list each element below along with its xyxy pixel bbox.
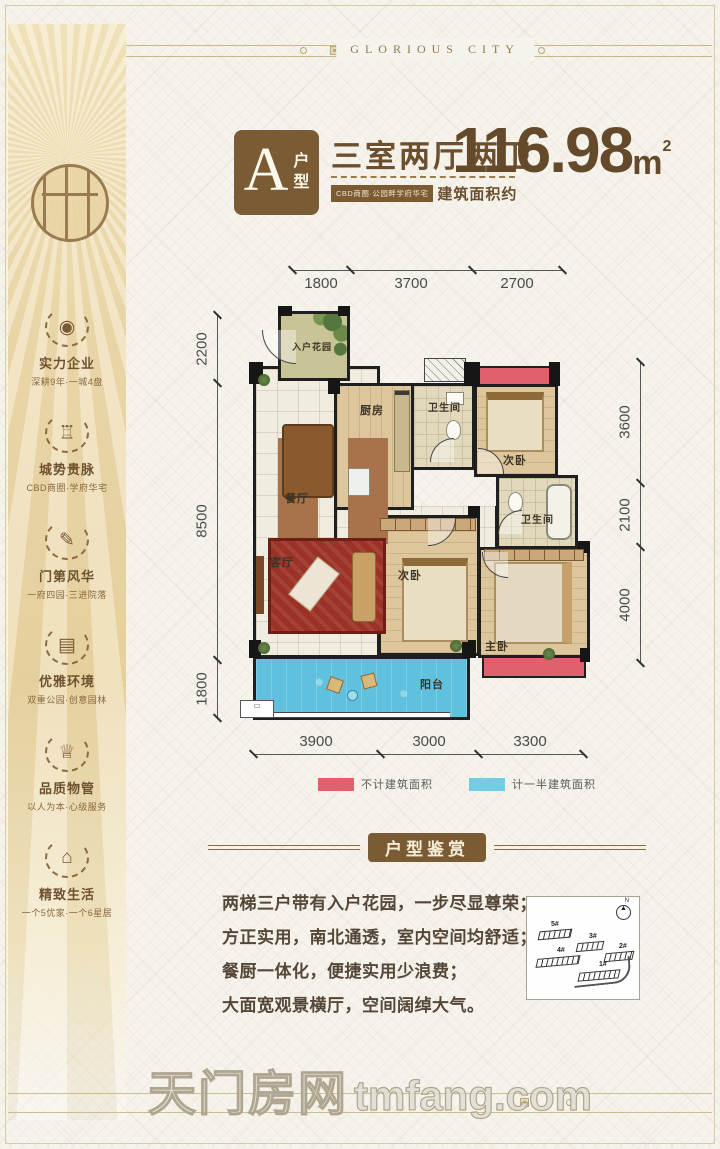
dining-table [282, 424, 334, 498]
plant [543, 648, 555, 660]
location-pin-icon: ◉ [45, 307, 89, 347]
sidebar-item-property: ♕ 品质物管 以人为本·心级服务 [8, 732, 126, 813]
dim-label: 1800 [194, 672, 211, 705]
bay-window-red-master [482, 656, 586, 678]
site-plan: N 5# 3# 2# 4# 1# [526, 896, 640, 1000]
bed-bedroom-top [486, 392, 544, 452]
building-label: 5# [551, 921, 559, 928]
plant [258, 642, 270, 654]
dim-label: 2700 [500, 275, 533, 292]
sidebar-item-subtitle: 双重公园·创意园林 [8, 693, 126, 706]
banner-rule-left [208, 845, 360, 850]
kitchen-sink [348, 468, 370, 496]
dim-label: 3900 [299, 733, 332, 750]
north-label: N [625, 898, 629, 904]
brand-name-en: GLORIOUS CITY [336, 38, 534, 61]
unit-letter: A [244, 139, 289, 207]
equipment-platform [424, 358, 466, 382]
area-unit: m [632, 144, 662, 183]
sidebar-item-title: 实力企业 [8, 353, 126, 372]
unit-label-char: 户 [293, 153, 309, 171]
section-title: 户型鉴赏 [368, 833, 486, 862]
blue-swatch [469, 778, 505, 791]
room-label-living: 客厅 [270, 554, 294, 570]
area-value: 116.98 [452, 118, 632, 182]
room-label-bath1: 卫生间 [428, 399, 461, 414]
plant [450, 640, 462, 652]
tv-cabinet [256, 556, 264, 614]
room-label-bedroom-mid: 次卧 [398, 567, 422, 583]
dim-line-right [640, 362, 641, 663]
balcony-window [270, 712, 450, 718]
bay-window-red-top [474, 366, 558, 386]
sidebar-item-subtitle: CBD商圈·学府华宅 [8, 481, 126, 494]
sidebar-item-title: 门第风华 [8, 566, 126, 585]
room-label-bedroom-top: 次卧 [503, 452, 527, 468]
dim-label: 1800 [304, 275, 337, 292]
area-figure: 116.98 m 2 [452, 118, 671, 183]
ornament-circle-icon [300, 47, 307, 54]
wall-pier [580, 648, 590, 662]
sidebar-item-location: ♖ 城势贵脉 CBD商圈·学府华宅 [8, 413, 126, 494]
dim-label: 3600 [617, 405, 634, 438]
sidebar-item-life: ⌂ 精致生活 一个5优家·一个6星居 [8, 838, 126, 919]
wall-pier [464, 362, 480, 386]
wall-pier [278, 306, 292, 316]
toilet-2 [508, 492, 523, 512]
tagline-chip: CBD商圈·公园畔学府华宅 [331, 185, 433, 202]
sidebar-item-heritage: ✎ 门第风华 一府四园·三进院落 [8, 520, 126, 601]
legend-label: 计一半建筑面积 [512, 776, 596, 792]
unit-type-badge: A 户 型 [234, 130, 319, 215]
brand-seal-icon [31, 164, 109, 242]
wall-pier [328, 378, 340, 394]
sidebar-item-subtitle: 以人为本·心级服务 [8, 800, 126, 813]
legend-item-blue: 计一半建筑面积 [469, 776, 596, 792]
building-footprint [576, 941, 605, 952]
poster-page: GLORIOUS CITY ◉ 实力企业 深耕9年·一城4盘 ♖ 城势贵脉 CB… [0, 0, 720, 1149]
room-label-entry-garden: 入户花园 [292, 340, 332, 353]
toilet [446, 420, 461, 440]
plant [258, 374, 270, 386]
sidebar-item-title: 城势贵脉 [8, 459, 126, 478]
building-label: 3# [589, 933, 597, 940]
legend-label: 不计建筑面积 [361, 776, 433, 792]
entry-door [262, 330, 296, 364]
unit-label: 户 型 [293, 153, 309, 192]
sidebar-item-strength: ◉ 实力企业 深耕9年·一城4盘 [8, 307, 126, 388]
legend: 不计建筑面积 计一半建筑面积 [318, 776, 596, 792]
description-line: 大面宽观景横厅，空间阔绰大气。 [222, 991, 532, 1016]
sidebar-item-subtitle: 一个5优家·一个6星居 [8, 906, 126, 919]
throne-icon: ♖ [45, 413, 89, 453]
banner-rule-right [494, 845, 646, 850]
watermark: 天门房网 tmfang.com [130, 1054, 610, 1124]
wall-pier [468, 506, 480, 518]
room-label-kitchen: 厨房 [360, 402, 384, 418]
legend-item-red: 不计建筑面积 [318, 776, 433, 792]
pen-nib-icon: ✎ [45, 520, 89, 560]
building-label: 2# [619, 943, 627, 950]
sidebar-item-title: 品质物管 [8, 778, 126, 797]
sidebar-item-title: 优雅环境 [8, 671, 126, 690]
dim-label: 3700 [394, 275, 427, 292]
room-label-master: 主卧 [485, 638, 509, 654]
tagline-row: CBD商圈·公园畔学府华宅 建筑面积约 [331, 183, 517, 204]
red-swatch [318, 778, 354, 791]
area-superscript: 2 [662, 138, 671, 156]
watermark-en: tmfang.com [354, 1072, 592, 1120]
ornament-circle-icon [538, 47, 545, 54]
dim-label: 3000 [412, 733, 445, 750]
books-icon: ▤ [45, 625, 89, 665]
unit-label-char: 型 [293, 174, 309, 192]
dim-label: 3300 [513, 733, 546, 750]
crown-icon: ♕ [45, 732, 89, 772]
description: 两梯三户带有入户花园，一步尽显尊荣； 方正实用，南北通透，室内空间均舒适； 餐厨… [222, 889, 532, 1025]
wall-pier [338, 306, 350, 316]
building-footprint [538, 929, 573, 941]
area-label: 建筑面积约 [437, 183, 517, 204]
sidebar-item-subtitle: 一府四园·三进院落 [8, 588, 126, 601]
description-line: 方正实用，南北通透，室内空间均舒适； [222, 923, 532, 948]
description-line: 两梯三户带有入户花园，一步尽显尊荣； [222, 889, 532, 914]
dim-line-top [292, 270, 562, 271]
room-label-bath2: 卫生间 [521, 511, 554, 526]
compass-icon [616, 905, 631, 920]
description-line: 餐厨一体化，便捷实用少浪费； [222, 957, 532, 982]
site-road [572, 956, 632, 988]
pavilion-icon: ⌂ [45, 838, 89, 878]
wall-pier [462, 640, 476, 658]
sofa [352, 552, 376, 622]
kitchen-counter [394, 390, 410, 472]
dim-label: 2200 [194, 332, 211, 365]
dim-line-bottom [253, 754, 583, 755]
room-label-dining: 餐厅 [285, 490, 309, 506]
sidebar: ◉ 实力企业 深耕9年·一城4盘 ♖ 城势贵脉 CBD商圈·学府华宅 ✎ 门第风… [8, 24, 126, 1120]
balcony-table [347, 690, 358, 701]
watermark-cn: 天门房网 [148, 1054, 348, 1124]
ac-unit-box: ▭ [240, 700, 274, 718]
sidebar-item-title: 精致生活 [8, 884, 126, 903]
sidebar-item-environment: ▤ 优雅环境 双重公园·创意园林 [8, 625, 126, 706]
sidebar-item-subtitle: 深耕9年·一城4盘 [8, 375, 126, 388]
wall-pier [549, 362, 560, 386]
building-label: 4# [557, 947, 565, 954]
dim-label: 8500 [194, 504, 211, 537]
room-label-balcony: 阳台 [420, 676, 444, 692]
dim-label: 2100 [617, 498, 634, 531]
dim-label: 4000 [617, 588, 634, 621]
